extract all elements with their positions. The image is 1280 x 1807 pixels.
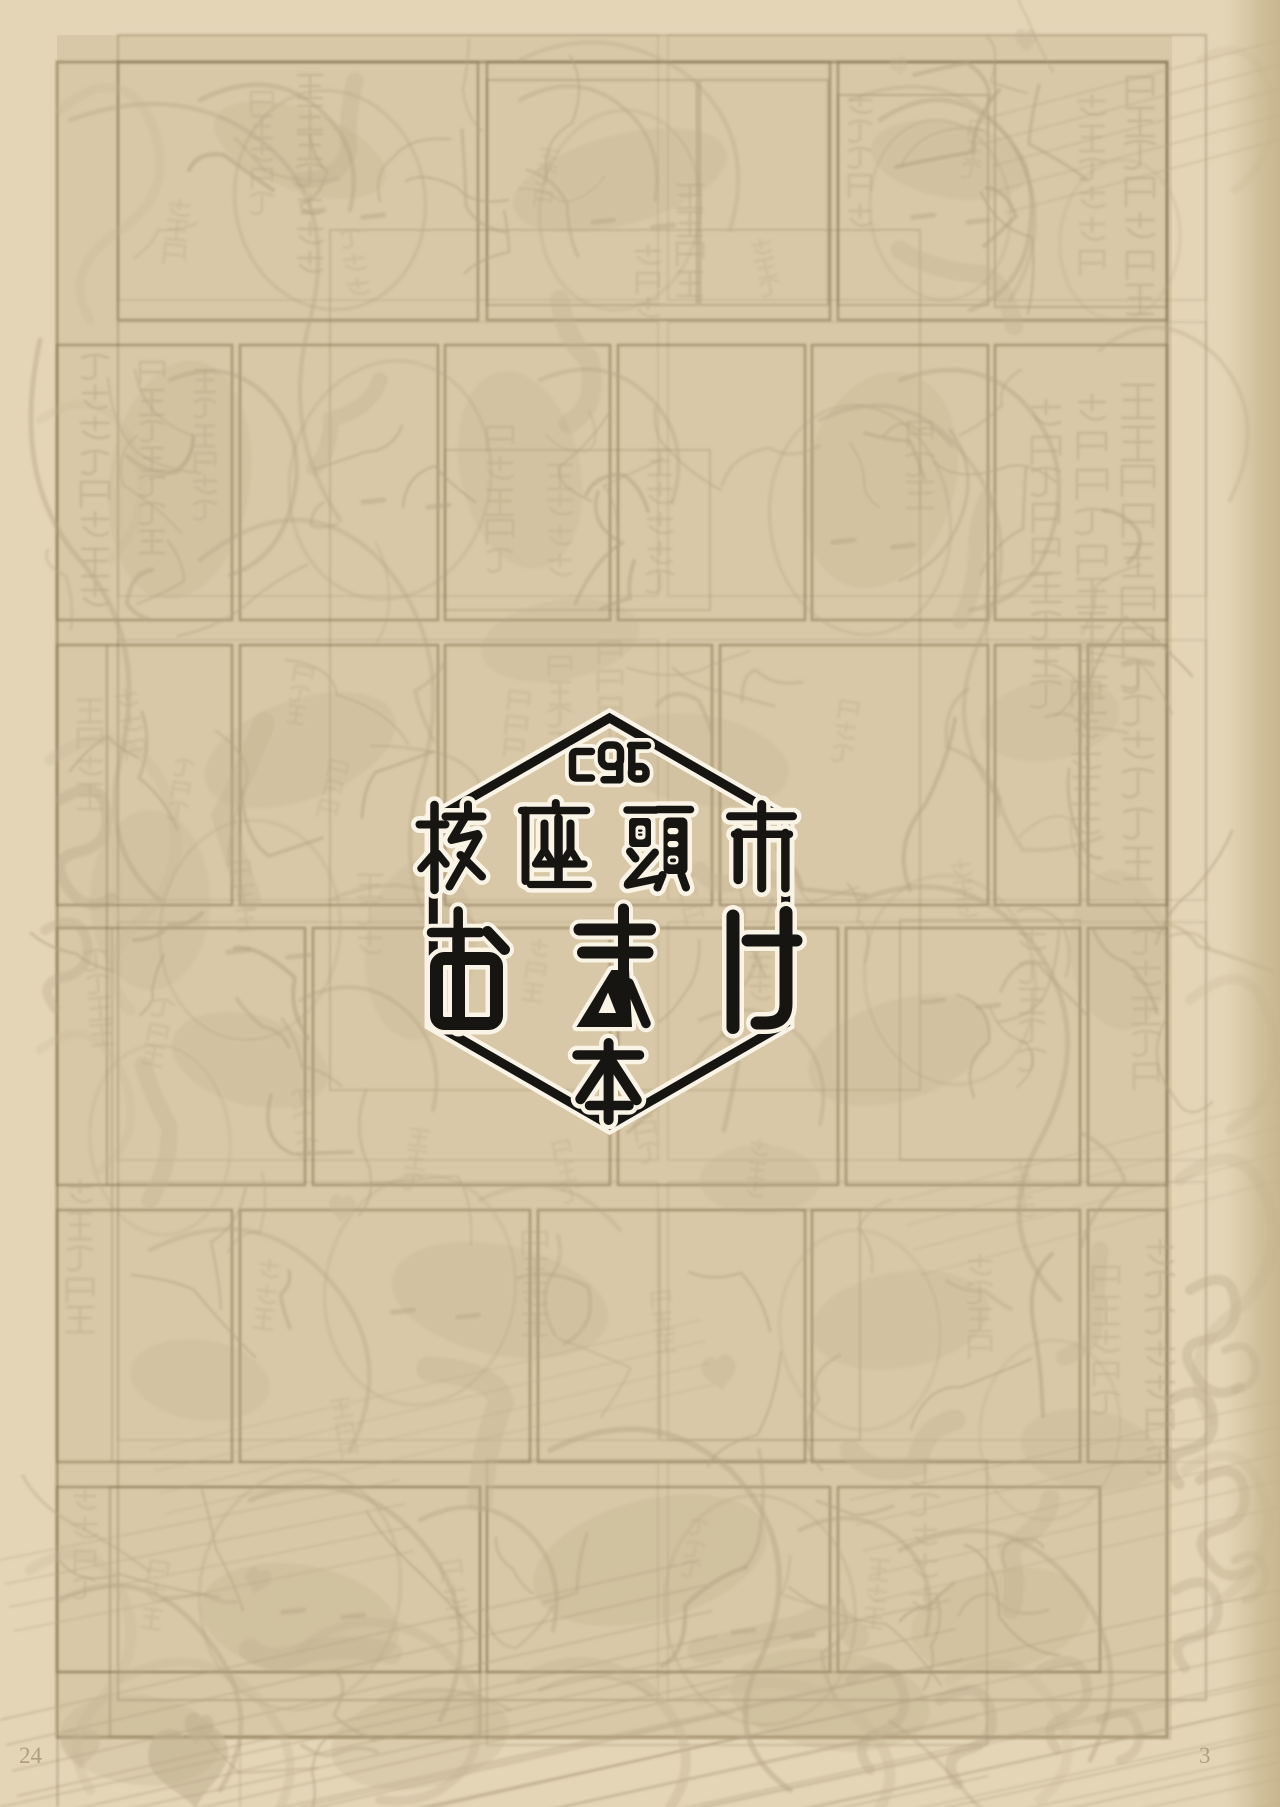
svg-text:24: 24	[19, 1743, 43, 1768]
svg-text:3: 3	[1199, 1743, 1211, 1768]
